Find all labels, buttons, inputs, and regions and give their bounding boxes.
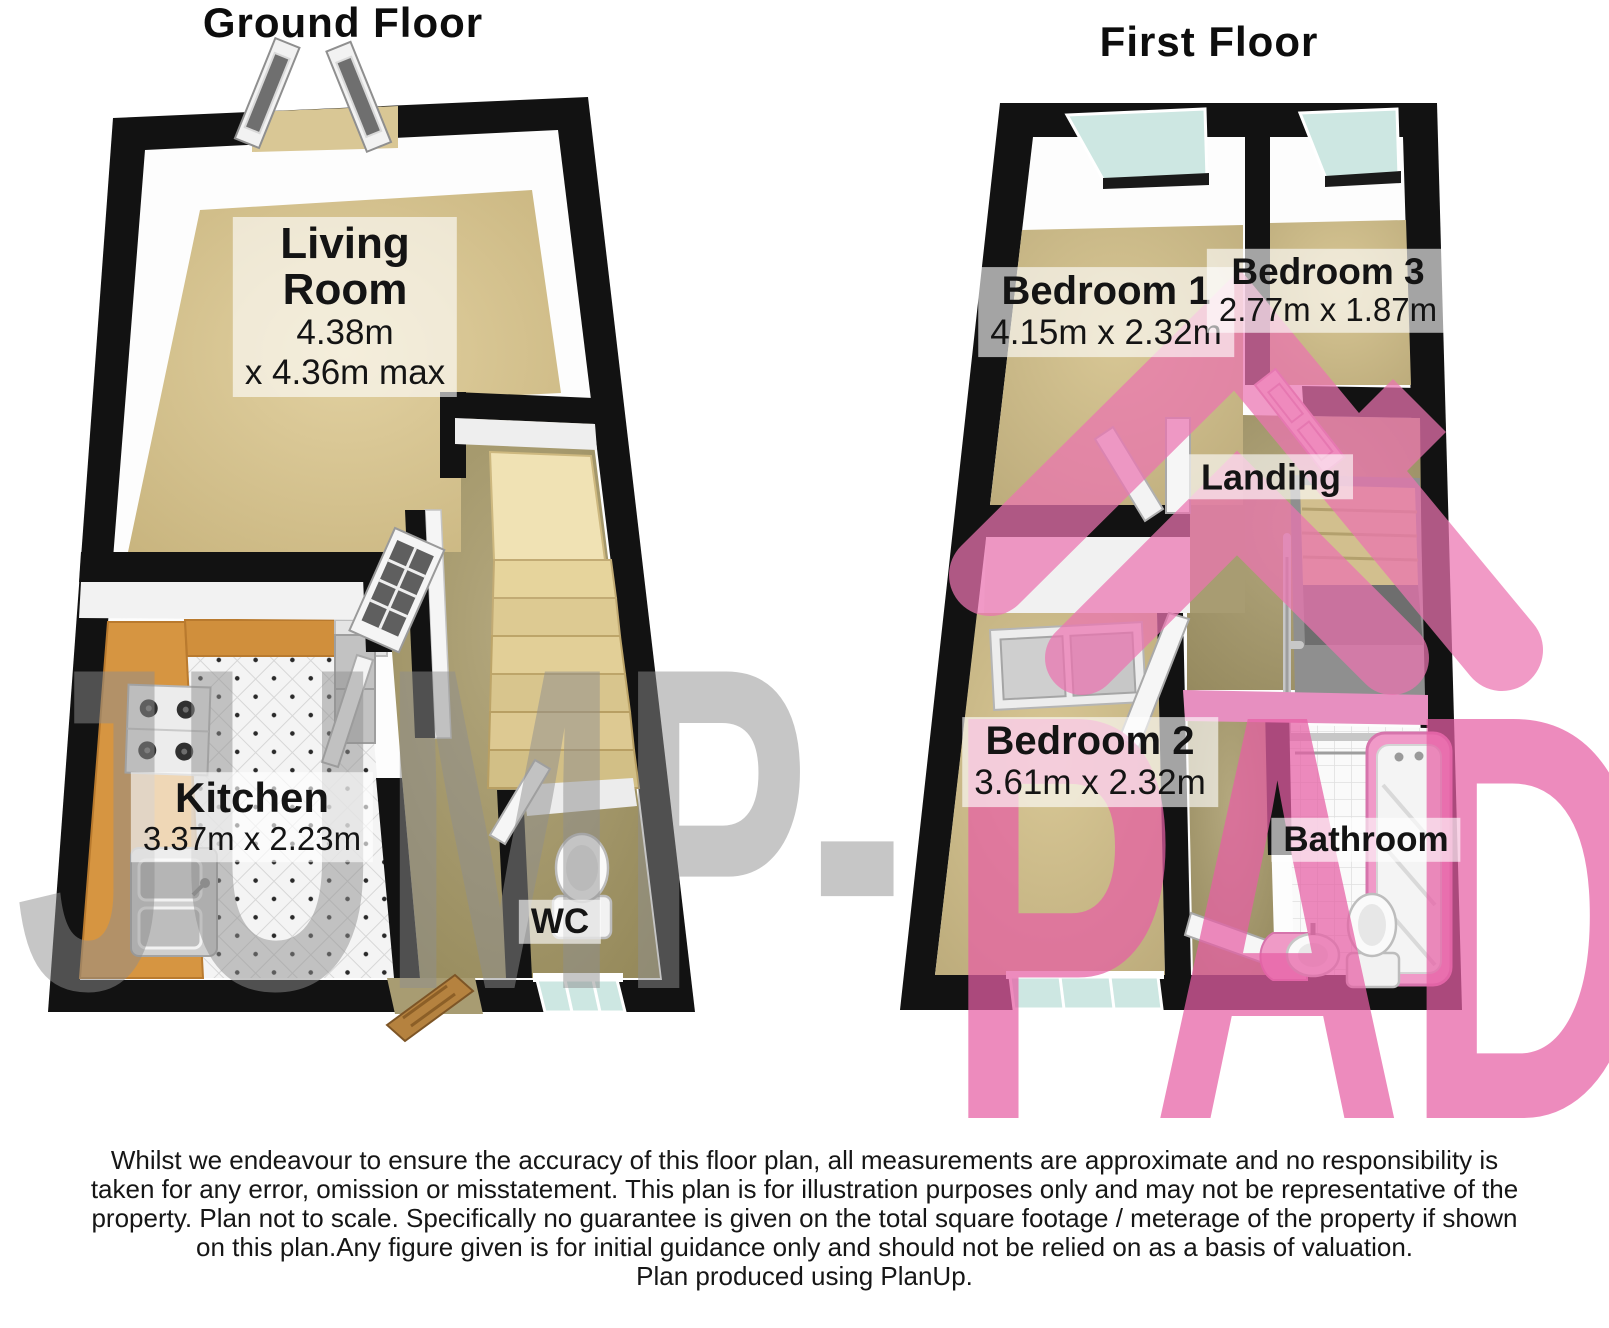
bedroom2-dims: 3.61m x 2.32m — [974, 763, 1206, 803]
kitchen-name: Kitchen — [143, 776, 361, 820]
living-room-name: Living Room — [245, 221, 445, 313]
disclaimer-line: property. Plan not to scale. Specificall… — [0, 1204, 1609, 1233]
bedroom1-dims: 4.15m x 2.32m — [990, 313, 1222, 353]
living-room-dims-2: x 4.36m max — [245, 353, 445, 393]
disclaimer-line: Plan produced using PlanUp. — [0, 1262, 1609, 1291]
ground-floor-title: Ground Floor — [203, 0, 483, 47]
living-room-dims-1: 4.38m — [245, 313, 445, 353]
bedroom1-label: Bedroom 1 4.15m x 2.32m — [978, 267, 1234, 357]
kitchen-label: Kitchen 3.37m x 2.23m — [131, 772, 373, 862]
wc-label: WC — [519, 900, 601, 944]
wc-name: WC — [531, 904, 589, 940]
bedroom2-name: Bedroom 2 — [974, 721, 1206, 763]
bedroom1-name: Bedroom 1 — [990, 271, 1222, 313]
bathroom-name: Bathroom — [1283, 822, 1448, 858]
living-room-label: Living Room 4.38m x 4.36m max — [233, 217, 457, 397]
landing-label: Landing — [1189, 454, 1353, 499]
bedroom2-label: Bedroom 2 3.61m x 2.32m — [962, 717, 1218, 807]
disclaimer-line: on this plan.Any figure given is for ini… — [0, 1233, 1609, 1262]
disclaimer-line: taken for any error, omission or misstat… — [0, 1175, 1609, 1204]
watermark-pad-text: PAD — [945, 593, 1609, 1241]
landing-name: Landing — [1201, 458, 1341, 495]
bathroom-label: Bathroom — [1271, 818, 1460, 862]
bedroom3-dims: 2.77m x 1.87m — [1219, 291, 1437, 329]
disclaimer-block: Whilst we endeavour to ensure the accura… — [0, 1146, 1609, 1291]
floorplan-page: JUMP- PAD Ground Floor First Floor Livin… — [0, 0, 1609, 1328]
bedroom3-name: Bedroom 3 — [1219, 253, 1437, 291]
watermark-overlay: JUMP- PAD — [0, 0, 1609, 1328]
first-floor-title: First Floor — [1100, 18, 1319, 66]
disclaimer-line: Whilst we endeavour to ensure the accura… — [0, 1146, 1609, 1175]
kitchen-dims: 3.37m x 2.23m — [143, 820, 361, 858]
bedroom3-label: Bedroom 3 2.77m x 1.87m — [1207, 249, 1449, 333]
